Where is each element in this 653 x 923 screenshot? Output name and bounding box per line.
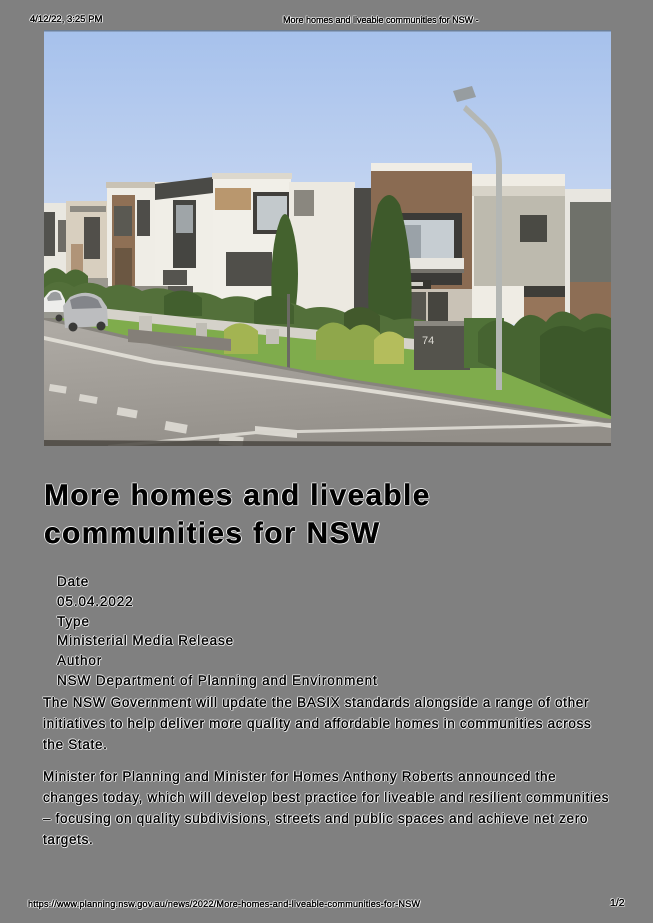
svg-text:74: 74: [422, 335, 434, 347]
